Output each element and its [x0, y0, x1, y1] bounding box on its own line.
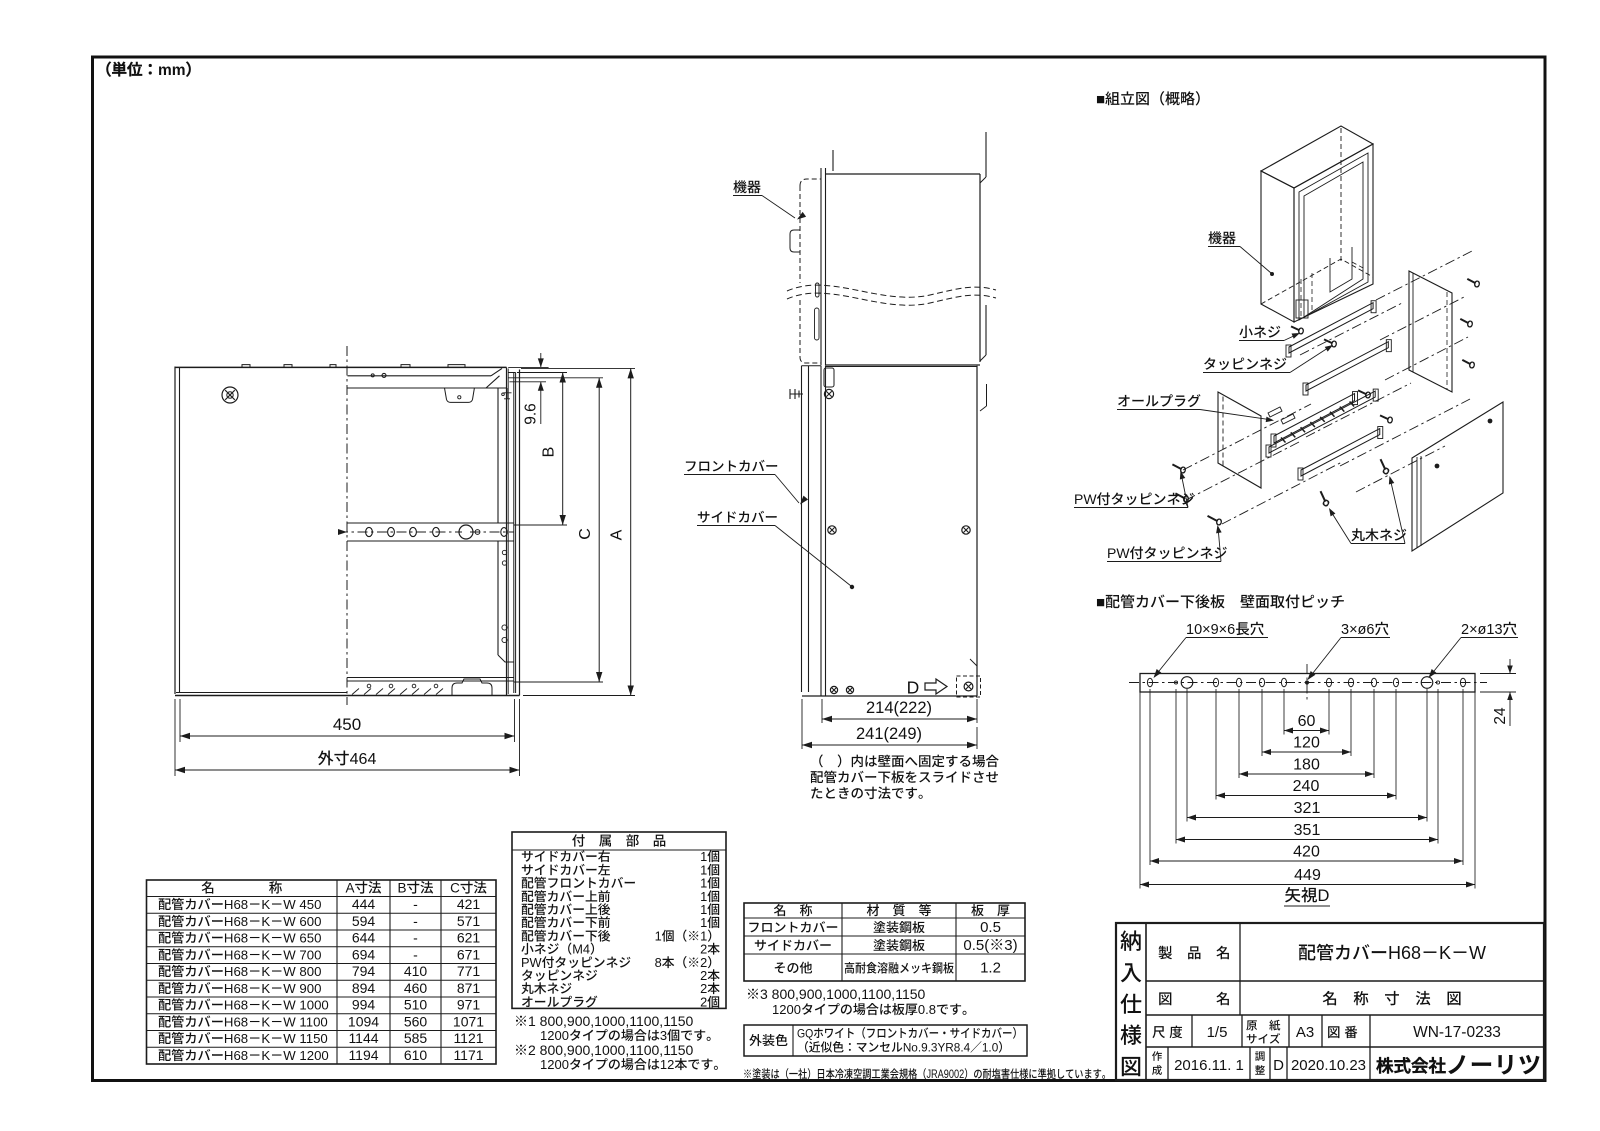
svg-text:321: 321	[1294, 800, 1321, 817]
svg-text:A: A	[609, 529, 626, 540]
svg-text:460: 460	[404, 980, 428, 996]
svg-text:1194: 1194	[348, 1047, 378, 1063]
svg-text:9.6: 9.6	[523, 403, 540, 425]
svg-text:420: 420	[1293, 844, 1320, 861]
svg-text:D: D	[907, 678, 920, 698]
svg-text:450: 450	[333, 715, 361, 734]
svg-text:作: 作	[1152, 1051, 1163, 1063]
svg-text:421: 421	[457, 896, 481, 912]
svg-text:板 厚: 板 厚	[971, 903, 1010, 918]
svg-text:1144: 1144	[348, 1030, 378, 1046]
svg-text:1200タイプの場合は3個です。: 1200タイプの場合は3個です。	[540, 1028, 719, 1043]
svg-text:図 名: 図 名	[1158, 991, 1231, 1008]
svg-text:サイドカバー: サイドカバー	[697, 510, 778, 525]
svg-text:180: 180	[1293, 757, 1320, 774]
svg-text:0.5: 0.5	[980, 919, 1001, 936]
svg-text:560: 560	[404, 1013, 428, 1029]
svg-text:機器: 機器	[733, 179, 761, 195]
svg-text:調: 調	[1255, 1051, 1266, 1063]
svg-text:名 称: 名 称	[773, 903, 812, 918]
svg-text:-: -	[413, 946, 418, 962]
svg-text:サイドカバー: サイドカバー	[754, 938, 832, 953]
svg-text:1121: 1121	[453, 1030, 483, 1046]
svg-text:1071: 1071	[453, 1013, 484, 1029]
svg-text:241(249): 241(249)	[856, 725, 922, 743]
svg-text:994: 994	[352, 997, 376, 1013]
svg-text:塗装鋼板: 塗装鋼板	[873, 920, 925, 935]
svg-text:C: C	[577, 528, 594, 540]
svg-text:240: 240	[1293, 778, 1320, 795]
svg-text:-: -	[413, 896, 418, 912]
svg-text:3×ø6穴: 3×ø6穴	[1341, 621, 1389, 638]
svg-text:付 属 部 品: 付 属 部 品	[572, 834, 667, 849]
svg-text:1200タイプの場合は板厚0.8です。: 1200タイプの場合は板厚0.8です。	[772, 1002, 975, 1017]
svg-text:（単位：mm）: （単位：mm）	[96, 61, 201, 79]
svg-text:外装色: 外装色	[749, 1033, 788, 1048]
svg-text:510: 510	[404, 997, 428, 1013]
svg-text:971: 971	[457, 997, 481, 1013]
svg-text:整: 整	[1255, 1065, 1266, 1077]
svg-text:C寸法: C寸法	[450, 881, 487, 896]
svg-text:2個: 2個	[700, 994, 720, 1009]
svg-text:たときの寸法です。: たときの寸法です。	[810, 786, 932, 801]
svg-text:B寸法: B寸法	[397, 881, 434, 896]
svg-text:※1 800,900,1000,1100,1150: ※1 800,900,1000,1100,1150	[514, 1013, 694, 1029]
svg-text:771: 771	[457, 963, 481, 979]
svg-text:塗装鋼板: 塗装鋼板	[873, 938, 925, 953]
svg-text:120: 120	[1293, 735, 1320, 752]
svg-text:B: B	[541, 447, 558, 458]
svg-text:オールプラグ: オールプラグ	[1117, 393, 1201, 409]
svg-text:丸木ネジ: 丸木ネジ	[1351, 527, 1407, 543]
svg-text:配管カバーH68－K－W 1200: 配管カバーH68－K－W 1200	[158, 1048, 329, 1063]
svg-text:■組立図（概略）: ■組立図（概略）	[1096, 91, 1210, 108]
svg-text:60: 60	[1298, 713, 1316, 730]
svg-text:794: 794	[352, 963, 376, 979]
svg-text:A3: A3	[1296, 1024, 1314, 1041]
svg-text:※3 800,900,1000,1100,1150: ※3 800,900,1000,1100,1150	[746, 986, 926, 1002]
svg-text:矢視D: 矢視D	[1285, 886, 1330, 905]
svg-text:871: 871	[457, 980, 481, 996]
svg-text:A寸法: A寸法	[345, 881, 382, 896]
svg-text:（近似色：マンセルNo.9.3YR8.4／1.0）: （近似色：マンセルNo.9.3YR8.4／1.0）	[797, 1041, 1010, 1055]
svg-text:PW付タッピンネジ: PW付タッピンネジ	[1074, 491, 1195, 507]
svg-text:仕: 仕	[1120, 992, 1142, 1017]
svg-text:24: 24	[1492, 707, 1509, 725]
svg-text:その他: その他	[773, 960, 812, 975]
svg-text:名 称: 名 称	[201, 881, 282, 896]
svg-text:オールプラグ: オールプラグ	[521, 994, 598, 1009]
svg-text:WN-17-0233: WN-17-0233	[1413, 1024, 1501, 1041]
svg-text:材 質 等: 材 質 等	[866, 903, 931, 918]
svg-text:※2 800,900,1000,1100,1150: ※2 800,900,1000,1100,1150	[514, 1042, 694, 1058]
svg-text:610: 610	[404, 1047, 428, 1063]
svg-text:694: 694	[352, 946, 376, 962]
svg-text:フロントカバー: フロントカバー	[684, 459, 779, 474]
svg-text:1.2: 1.2	[980, 959, 1001, 976]
svg-text:製 品 名: 製 品 名	[1158, 945, 1231, 962]
svg-text:配管カバーH68－K－W: 配管カバーH68－K－W	[1298, 943, 1486, 963]
svg-text:様: 様	[1120, 1023, 1142, 1048]
svg-text:621: 621	[457, 930, 481, 946]
svg-text:585: 585	[404, 1030, 428, 1046]
svg-text:571: 571	[457, 913, 481, 929]
svg-text:成: 成	[1152, 1065, 1163, 1077]
svg-text:10×9×6長穴: 10×9×6長穴	[1186, 621, 1264, 638]
svg-text:配管カバーH68－K－W 900: 配管カバーH68－K－W 900	[158, 981, 321, 996]
svg-text:機器: 機器	[1208, 230, 1236, 246]
svg-text:サイズ: サイズ	[1246, 1033, 1281, 1046]
svg-text:449: 449	[1294, 867, 1321, 884]
svg-text:納: 納	[1120, 929, 1142, 954]
svg-text:小ネジ: 小ネジ	[1239, 324, 1281, 340]
svg-text:図 番: 図 番	[1327, 1025, 1358, 1040]
svg-text:2016.11. 1: 2016.11. 1	[1174, 1057, 1244, 1074]
svg-text:配管カバーH68－K－W 600: 配管カバーH68－K－W 600	[158, 914, 321, 929]
svg-text:D: D	[1273, 1057, 1284, 1074]
svg-text:配管カバーH68－K－W 1150: 配管カバーH68－K－W 1150	[158, 1031, 328, 1046]
svg-text:フロントカバー: フロントカバー	[747, 920, 838, 935]
svg-text:配管カバーH68－K－W 700: 配管カバーH68－K－W 700	[158, 947, 321, 962]
svg-text:（ ）内は壁面へ固定する場合: （ ）内は壁面へ固定する場合	[810, 754, 999, 769]
svg-text:214(222): 214(222)	[866, 699, 932, 717]
svg-text:配管カバーH68－K－W 450: 配管カバーH68－K－W 450	[158, 897, 321, 912]
svg-text:配管カバー下板をスライドさせ: 配管カバー下板をスライドさせ	[810, 770, 999, 785]
svg-text:0.5(※3): 0.5(※3)	[963, 937, 1017, 954]
svg-text:タッピンネジ: タッピンネジ	[1203, 356, 1287, 372]
svg-text:1094: 1094	[348, 1013, 379, 1029]
svg-text:-: -	[413, 913, 418, 929]
svg-text:671: 671	[457, 946, 481, 962]
svg-text:高耐食溶融メッキ鋼板: 高耐食溶融メッキ鋼板	[844, 961, 954, 975]
svg-text:644: 644	[352, 930, 376, 946]
svg-text:外寸464: 外寸464	[318, 750, 377, 768]
svg-text:図: 図	[1120, 1055, 1142, 1080]
svg-text:尺 度: 尺 度	[1152, 1025, 1183, 1040]
svg-text:■配管カバー下後板 壁面取付ピッチ: ■配管カバー下後板 壁面取付ピッチ	[1096, 594, 1345, 611]
svg-text:1/5: 1/5	[1207, 1024, 1228, 1041]
svg-text:※塗装は（一社）日本冷凍空調工業会規格（JRA9002）の耐: ※塗装は（一社）日本冷凍空調工業会規格（JRA9002）の耐塩害仕様に準拠してい…	[743, 1068, 1111, 1081]
svg-text:410: 410	[404, 963, 428, 979]
svg-text:894: 894	[352, 980, 376, 996]
svg-text:1200タイプの場合は12本です。: 1200タイプの場合は12本です。	[540, 1057, 726, 1072]
svg-text:594: 594	[352, 913, 376, 929]
svg-text:2020.10.23: 2020.10.23	[1291, 1057, 1366, 1074]
svg-text:配管カバーH68－K－W 800: 配管カバーH68－K－W 800	[158, 964, 321, 979]
svg-text:1171: 1171	[453, 1047, 483, 1063]
svg-text:GQホワイト（フロントカバー・サイドカバー）: GQホワイト（フロントカバー・サイドカバー）	[797, 1027, 1023, 1041]
svg-text:配管カバーH68－K－W 1000: 配管カバーH68－K－W 1000	[158, 998, 329, 1013]
svg-text:351: 351	[1294, 822, 1321, 839]
svg-text:原 紙: 原 紙	[1246, 1020, 1281, 1033]
svg-text:-: -	[413, 930, 418, 946]
svg-text:名 称 寸 法 図: 名 称 寸 法 図	[1322, 990, 1462, 1008]
svg-text:配管カバーH68－K－W 1100: 配管カバーH68－K－W 1100	[158, 1014, 328, 1029]
svg-text:配管カバーH68－K－W 650: 配管カバーH68－K－W 650	[158, 931, 321, 946]
svg-text:入: 入	[1120, 960, 1142, 985]
svg-text:2×ø13穴: 2×ø13穴	[1461, 621, 1517, 638]
svg-text:444: 444	[352, 896, 376, 912]
svg-text:PW付タッピンネジ: PW付タッピンネジ	[1107, 545, 1228, 561]
